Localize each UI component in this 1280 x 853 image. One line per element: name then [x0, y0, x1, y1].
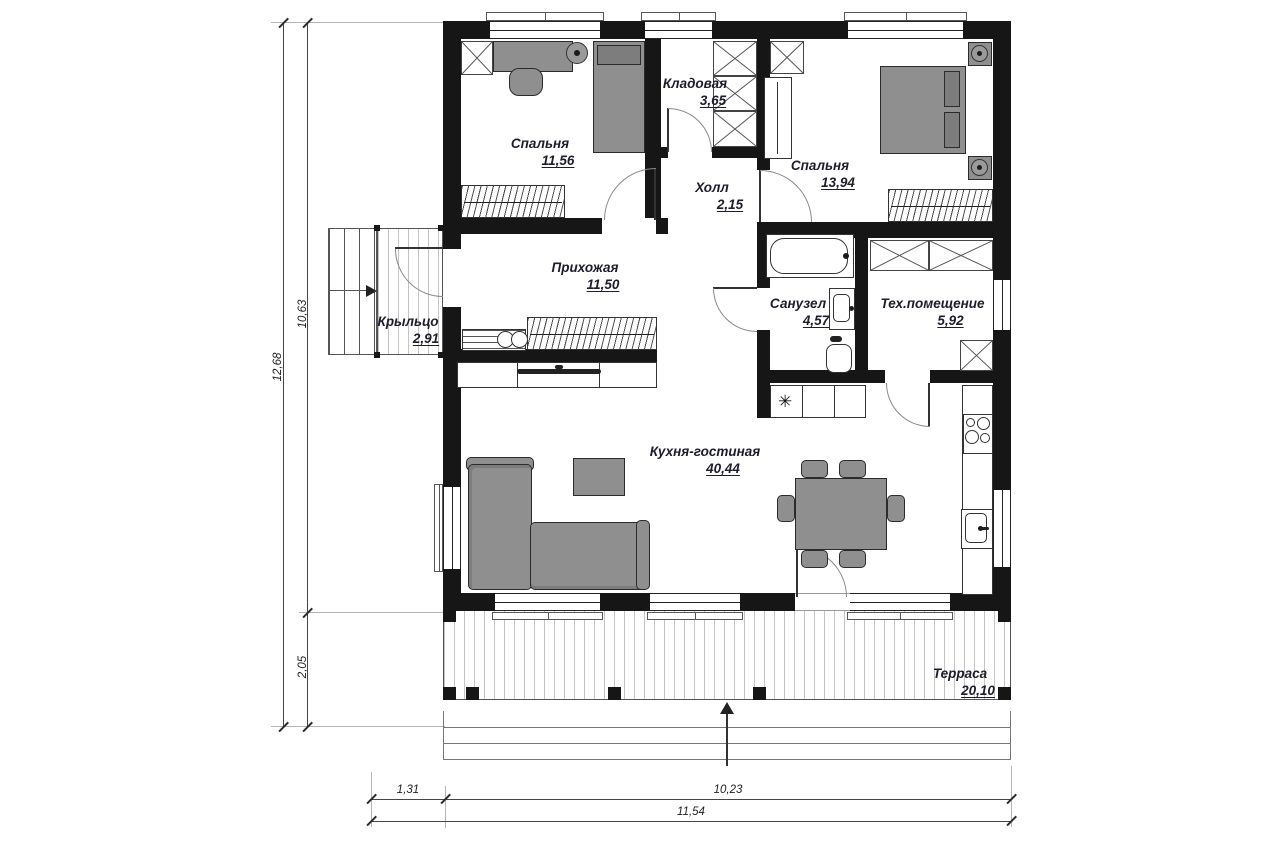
dim-label-left-total: 12,68 — [272, 343, 284, 391]
room-label-entry: Прихожая 11,50 — [525, 260, 645, 294]
dining-chair — [777, 495, 795, 522]
dining-chair — [839, 460, 866, 478]
dining-chair — [839, 550, 866, 568]
window-sill — [647, 612, 743, 620]
porch-stairs-guide — [328, 290, 368, 291]
tech-equipment-box — [960, 340, 993, 371]
dim-label-left-upper: 10,63 — [297, 290, 309, 338]
window-sill — [641, 12, 716, 21]
office-chair — [509, 68, 543, 96]
dining-chair — [801, 460, 828, 478]
wall-stub — [656, 218, 668, 234]
room-label-porch: Крыльцо 2,91 — [348, 314, 468, 348]
room-label-bathroom: Санузел 4,57 — [738, 296, 858, 330]
toilet — [826, 344, 852, 373]
storage-shelf — [713, 111, 757, 147]
window-sill — [492, 612, 603, 620]
floor-plan: 12,68 10,63 2,05 1,31 10,23 11,54 — [0, 0, 1280, 853]
room-name: Тех.помещение — [880, 296, 984, 313]
room-name: Спальня — [511, 136, 569, 153]
window — [848, 21, 963, 39]
dining-table — [795, 478, 887, 550]
window-sill — [844, 12, 967, 21]
cabinet-mirror-line — [777, 82, 778, 154]
sofa-armrest — [636, 520, 650, 590]
room-area: 13,94 — [821, 175, 855, 192]
storage-door-arc — [668, 108, 712, 152]
tv-mount — [555, 365, 563, 369]
room-area: 2,91 — [413, 331, 439, 348]
stove-burner-icon — [966, 418, 975, 427]
room-name: Кухня-гостиная — [650, 444, 760, 461]
window — [850, 593, 950, 611]
tv — [517, 369, 601, 374]
sofa-seat-vertical — [468, 464, 532, 590]
sofa-seat-horizontal — [530, 522, 648, 590]
room-area: 40,44 — [706, 461, 740, 478]
terrace-post — [443, 687, 456, 700]
room-label-bedroom2: Спальня 13,94 — [760, 158, 880, 192]
terrace-post — [998, 611, 1011, 622]
wall-storage-bottom — [712, 147, 757, 158]
counter-divider — [802, 385, 803, 418]
tech-equipment-box — [870, 240, 929, 271]
wall-outer-right — [993, 21, 1011, 280]
dimension-line-left-inner — [307, 23, 308, 727]
wall-tech-bottom — [868, 370, 885, 383]
room-label-tech: Тех.помещение 5,92 — [870, 296, 995, 330]
room-name: Крыльцо — [378, 314, 439, 331]
entrance-arrow-icon — [720, 702, 734, 714]
room-name: Санузел — [770, 296, 826, 313]
extension-line — [299, 612, 445, 613]
room-label-hall: Холл 2,15 — [652, 180, 772, 214]
window — [495, 593, 600, 611]
dining-chair — [801, 550, 828, 568]
room-area: 11,56 — [542, 153, 575, 170]
counter-divider — [834, 385, 835, 418]
dimension-line-bottom-inner — [371, 799, 1011, 800]
terrace-post — [753, 687, 766, 700]
tv-stand-divider — [599, 362, 600, 388]
refrigerator-snowflake-icon: ✳ — [778, 393, 792, 410]
table-lamp-dot — [977, 165, 982, 170]
wall-outer-right — [993, 330, 1011, 490]
room-label-kitchen: Кухня-гостиная 40,44 — [645, 444, 765, 478]
terrace-step-edge — [443, 711, 444, 760]
dim-label-left-lower: 2,05 — [297, 643, 309, 691]
wall-outer-left — [443, 21, 461, 249]
stove-burner-icon — [977, 417, 990, 430]
dim-label-bottom-total: 11,54 — [667, 806, 715, 818]
dining-chair — [887, 495, 905, 522]
porch-arrow-icon — [366, 285, 377, 297]
stove-burner-icon — [980, 433, 990, 443]
dim-label-bottom-left: 1,31 — [384, 784, 432, 796]
wardrobe — [461, 185, 565, 218]
tech-door-arc — [886, 383, 930, 427]
room-name: Прихожая — [551, 260, 618, 277]
room-area: 11,50 — [587, 277, 620, 294]
closet-box — [461, 41, 493, 75]
wardrobe — [527, 317, 657, 350]
wall-outer-bottom — [740, 593, 795, 611]
room-name: Холл — [695, 180, 729, 197]
bed-pillow — [597, 45, 641, 65]
stove-burner-icon — [965, 430, 979, 444]
porch-corner-post — [374, 352, 380, 358]
window — [443, 487, 461, 569]
room-area: 5,92 — [937, 313, 963, 330]
room-name: Кладовая — [663, 76, 727, 93]
wardrobe — [888, 189, 993, 222]
bathtub-faucet-icon — [843, 253, 849, 259]
window — [645, 21, 712, 39]
room-area: 2,15 — [717, 197, 743, 214]
dimension-line-bottom-total — [371, 821, 1011, 822]
extension-line — [271, 726, 445, 727]
window-sill — [847, 612, 953, 620]
tall-cabinet — [764, 77, 792, 159]
room-label-terrace: Терраса 20,10 — [900, 666, 1020, 700]
room-label-storage: Кладовая 3,65 — [635, 76, 755, 110]
window — [650, 593, 740, 611]
window — [993, 490, 1011, 567]
coffee-table — [573, 458, 625, 496]
wall-bedroom1-bottom — [461, 218, 602, 234]
desk-lamp-dot — [574, 50, 580, 56]
terrace-step-edge — [1010, 711, 1011, 760]
room-label-bedroom1: Спальня 11,56 — [480, 136, 600, 170]
dim-label-bottom-main: 10,23 — [704, 784, 752, 796]
window-sill — [486, 12, 604, 21]
window-sill — [434, 484, 443, 572]
wall-bath-bottom — [757, 370, 868, 383]
kitchen-sink-tap-dot — [978, 526, 983, 531]
bedroom1-door-arc — [604, 168, 656, 220]
entrance-arrow-stem — [726, 714, 728, 766]
bed-pillow — [944, 71, 960, 107]
room-area: 3,65 — [700, 93, 726, 110]
room-name: Терраса — [933, 666, 987, 683]
terrace-post — [443, 611, 456, 622]
wall-tech-bottom — [930, 370, 993, 383]
wall-outer-bottom — [950, 593, 1011, 611]
window — [993, 280, 1011, 330]
wall-outer-bottom — [443, 593, 495, 611]
room-name: Спальня — [791, 158, 849, 175]
terrace-post — [608, 687, 621, 700]
terrace-post — [466, 687, 479, 700]
table-lamp-dot — [977, 51, 982, 56]
room-area: 20,10 — [961, 683, 995, 700]
tv-stand-divider — [517, 362, 518, 388]
extension-line — [271, 22, 445, 23]
tech-equipment-box — [929, 240, 993, 271]
shoe-bench-knob-icon — [511, 331, 528, 348]
bed-pillow — [944, 112, 960, 148]
wall-outer-bottom — [600, 593, 650, 611]
closet-box — [770, 41, 804, 74]
storage-shelf — [713, 41, 757, 76]
room-area: 4,57 — [803, 313, 829, 330]
toilet-cistern — [830, 336, 842, 342]
window — [490, 21, 600, 39]
porch-corner-post — [374, 225, 380, 231]
front-door-opening — [443, 249, 461, 307]
bathtub-basin — [770, 238, 848, 274]
